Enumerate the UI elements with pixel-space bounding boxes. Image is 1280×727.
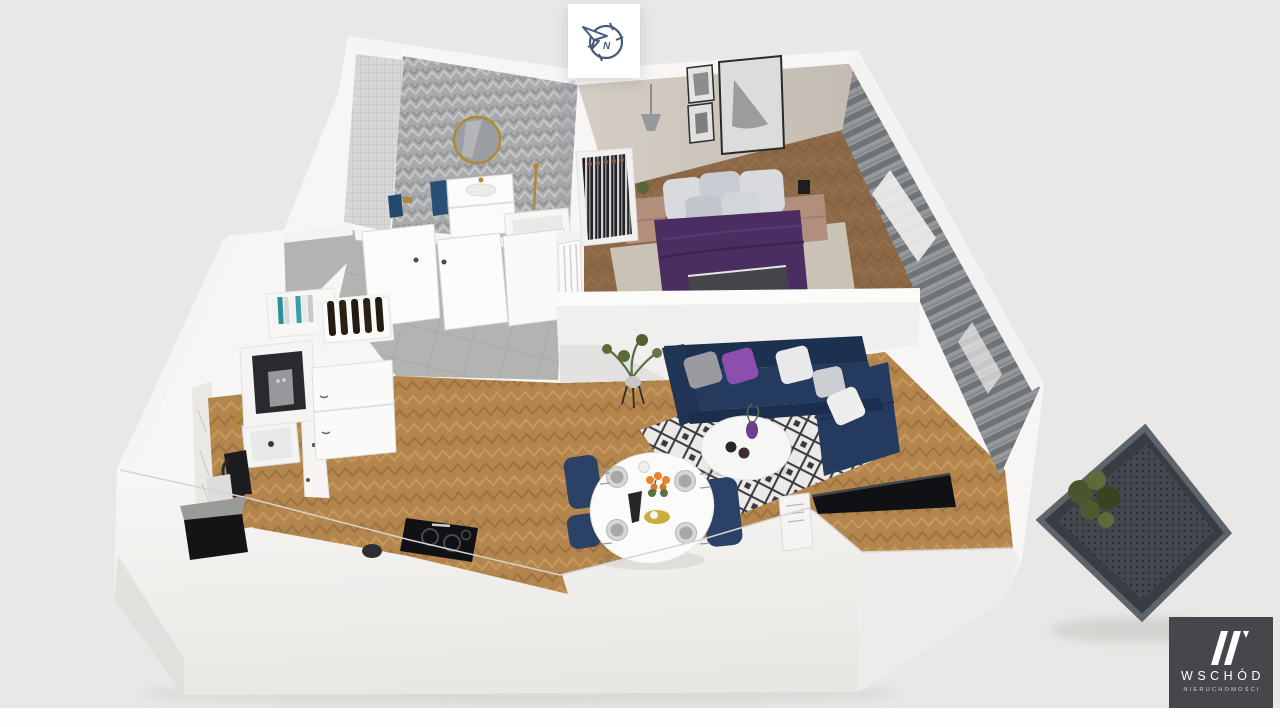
compass-north-label: N <box>603 41 611 52</box>
door-bathroom <box>437 233 508 330</box>
dark-bowl <box>362 544 382 558</box>
compass-north-icon: N <box>579 16 629 66</box>
blue-towel-2 <box>388 194 403 218</box>
gold-accent <box>403 197 412 203</box>
footer-strip <box>0 708 1280 727</box>
brand-subtitle: NIERUCHOMOŚCI <box>1181 687 1260 693</box>
hangers <box>582 154 632 240</box>
gold-faucet <box>479 178 484 183</box>
wall-art <box>687 56 784 154</box>
side-table <box>779 493 813 551</box>
nightstand-plant <box>637 182 649 194</box>
brand-name: WSCHÓD <box>1177 669 1265 683</box>
bedside-clock <box>798 180 810 194</box>
floorplan-viewer: N WSCHÓD NIERUCHOMOŚCI <box>0 0 1280 727</box>
counter-box <box>206 474 233 503</box>
double-slash-monogram-icon <box>1193 627 1249 667</box>
purple-vase <box>746 421 758 439</box>
bathroom <box>344 38 578 256</box>
open-wardrobe <box>576 148 638 246</box>
floorplan-render <box>0 0 1280 727</box>
window-opening <box>184 514 248 560</box>
brand-logo: WSCHÓD NIERUCHOMOŚCI <box>1169 617 1273 715</box>
compass-button[interactable]: N <box>568 4 640 78</box>
